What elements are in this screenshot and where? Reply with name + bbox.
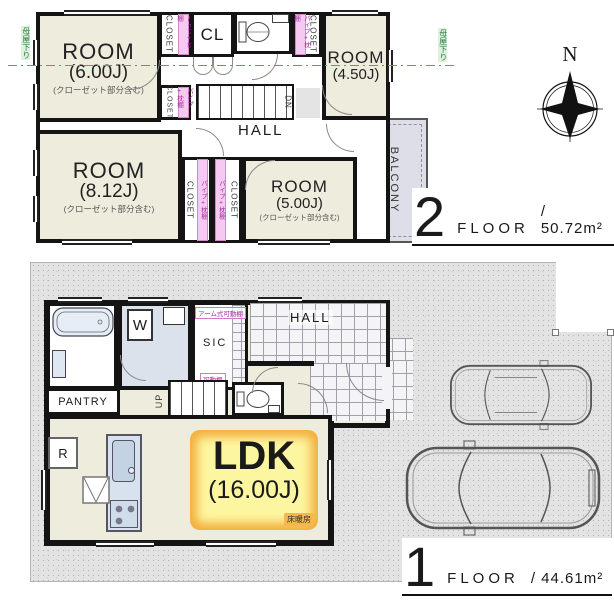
floor2-label: 2 FLOOR / 50.72m²	[412, 188, 614, 246]
closet-d-label: CLOSET	[230, 181, 239, 219]
window	[332, 10, 378, 16]
wash-cabinet	[163, 307, 185, 325]
washer-box: W	[127, 309, 153, 341]
ldk-size: (16.00J)	[190, 477, 318, 503]
closet-c-label: CLOSET	[186, 181, 195, 219]
room-812-note: (クローゼット部分含む)	[64, 205, 155, 214]
washer-label: W	[133, 317, 147, 334]
window	[41, 470, 47, 510]
hall-1f-label: HALL	[288, 310, 333, 325]
closet-c-shelf-label: パイプ+枕棚	[198, 180, 208, 220]
stairs-up-label: UP	[154, 394, 164, 409]
window	[206, 541, 276, 547]
cl-label: CL	[201, 25, 225, 45]
bathtub-icon	[52, 307, 114, 337]
window	[33, 150, 39, 176]
kitchen-stove	[110, 500, 138, 528]
floor1-plan: HALL W アーム式可動棚 SIC 可動棚 PANTRY	[0, 255, 614, 600]
land-notch	[556, 262, 612, 332]
car-icon-sedan	[402, 440, 604, 536]
floorplan-canvas: BALCONY ROOM (6.00J) (クローゼット部分含む) ROOM (…	[0, 0, 614, 600]
window	[33, 84, 39, 110]
window	[128, 297, 168, 303]
room-812: ROOM (8.12J) (クローゼット部分含む)	[36, 130, 182, 243]
hall-2f-label: HALL	[238, 122, 284, 139]
closet-a2-shelf-label: パイプ+枕棚	[174, 88, 194, 117]
room-450-size: (4.50J)	[333, 67, 380, 83]
floor1-area: / 44.61m²	[531, 570, 603, 590]
ldk-title-group: LDK (16.00J)	[190, 435, 318, 503]
cl-room: CL	[191, 12, 234, 57]
room-812-size: (8.12J)	[79, 182, 138, 202]
closet-b-shelf-label: パイプ+枕棚	[291, 15, 311, 54]
floor2-area: / 50.72m²	[541, 203, 610, 240]
bath-counter	[52, 350, 66, 378]
fridge-box: R	[48, 437, 78, 469]
pantry: PANTRY	[46, 388, 120, 415]
compass-rose-icon	[534, 67, 606, 147]
closet-a2-shelf-bar: パイプ+枕棚	[178, 87, 189, 118]
window	[258, 239, 330, 245]
window	[327, 460, 333, 500]
window	[96, 541, 154, 547]
room-812-title: ROOM	[73, 159, 145, 182]
kitchen-sink	[112, 440, 135, 482]
closet-a-label: CLOSET	[165, 15, 174, 53]
window	[58, 297, 102, 303]
stairs-2f	[196, 84, 294, 120]
survey-marker	[607, 329, 614, 336]
toilet-icon-2f	[238, 16, 274, 48]
floor2-number: 2	[414, 195, 445, 240]
wall-hall-bottom	[248, 361, 314, 366]
stairwell-shade	[296, 88, 320, 118]
window	[258, 297, 302, 303]
eaves-label-left: 母屋下り	[21, 26, 30, 60]
closet-c-shelf-bar: パイプ+枕棚	[197, 159, 208, 241]
room-600-title: ROOM	[62, 40, 134, 63]
room-500-title: ROOM	[271, 178, 328, 196]
room-500-note: (クローゼット部分含む)	[260, 214, 340, 222]
toilet-counter-2f	[272, 14, 289, 23]
floor2-plan: BALCONY ROOM (6.00J) (クローゼット部分含む) ROOM (…	[0, 0, 614, 260]
sic-arm-shelf-label: アーム式可動棚	[195, 307, 246, 319]
window	[33, 40, 39, 66]
ldk-title: LDK	[190, 435, 318, 477]
window	[64, 10, 150, 16]
window	[387, 50, 393, 82]
closet-d-shelf-label: パイプ+枕棚	[216, 180, 226, 220]
sic-label: SIC	[203, 337, 227, 349]
room-500-size: (5.00J)	[276, 196, 323, 212]
stairs-dn-label: DN	[284, 95, 293, 109]
floor2-word: FLOOR	[457, 220, 529, 240]
hatch-box-icon	[82, 476, 110, 504]
pantry-label: PANTRY	[58, 396, 108, 408]
floor1-number: 1	[404, 545, 435, 590]
compass: N	[534, 42, 606, 146]
floor1-label: 1 FLOOR / 44.61m²	[402, 538, 612, 596]
closet-b-label: CLOSET	[309, 15, 318, 53]
closet-a-shelf-bar: パイプ+枕棚	[178, 14, 189, 55]
car-icon-suv	[448, 357, 594, 433]
floor-heating-chip: 床暖房	[284, 513, 314, 526]
eaves-label-right: 母屋下り	[438, 28, 447, 62]
ridge-line	[8, 65, 458, 66]
window	[62, 239, 132, 245]
fridge-label: R	[58, 446, 67, 461]
closet-d-shelf-bar: パイプ+枕棚	[215, 159, 226, 241]
kitchen-faucet	[128, 467, 135, 474]
compass-n-label: N	[534, 42, 606, 67]
survey-marker	[552, 329, 559, 336]
toilet-sink-1f	[268, 405, 280, 413]
floor1-word: FLOOR	[447, 570, 519, 590]
closet-b-shelf-bar: パイプ+枕棚	[295, 14, 306, 55]
closet-a2-label: CLOSET	[166, 85, 173, 119]
window	[33, 196, 39, 222]
